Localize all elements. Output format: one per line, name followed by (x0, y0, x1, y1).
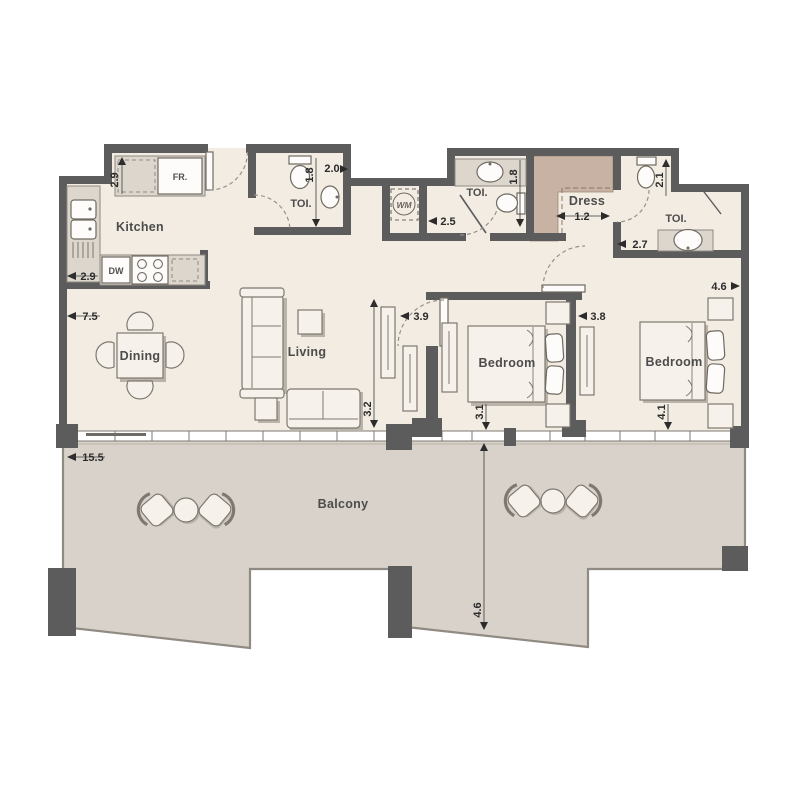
toilet2-wc-tank (517, 193, 525, 214)
pillar-right (722, 546, 748, 571)
dishwasher-label: DW (109, 266, 124, 276)
toilet1-label: TOI. (290, 198, 311, 210)
toilet3-wc-tank (637, 157, 656, 165)
toilet1-wc-tank (289, 156, 311, 164)
kitchen-label: Kitchen (116, 220, 164, 234)
dim-living-h: 3.2 (362, 401, 374, 416)
floor-plan: FR. DW Kitchen TOI. WM (0, 0, 800, 800)
living-label: Living (288, 345, 327, 359)
dim-lobby: 2.5 (440, 216, 455, 228)
dim-bedroom1-h: 3.1 (474, 404, 486, 419)
fridge-label: FR. (173, 172, 188, 182)
bedroom1-nightstand-top (546, 302, 570, 324)
balcony-table (174, 498, 198, 522)
dim-toilet1-h: 1.8 (304, 167, 316, 182)
bedroom2-label: Bedroom (646, 355, 703, 369)
dim-bedroom2-h: 4.1 (656, 404, 668, 419)
toilet3-wc-bowl (638, 166, 655, 188)
bedroom2-nightstand-top (708, 298, 733, 320)
dim-kitchen-bottom: 2.9 (80, 271, 95, 283)
dim-bedroom2-top: 4.6 (711, 281, 726, 293)
side-table (255, 398, 277, 420)
bedroom2-nightstand-bottom (708, 404, 733, 428)
dim-bedroom1-w: 3.8 (590, 311, 605, 323)
dim-dress-w: 1.2 (574, 211, 589, 223)
kitchen-sink-2 (71, 220, 96, 239)
dining-label: Dining (120, 349, 161, 363)
dim-kitchen-left: 2.9 (109, 172, 121, 187)
dim-toilet1-w: 2.0 (324, 163, 339, 175)
toilet2-label: TOI. (466, 187, 487, 199)
entry-door-leaf (206, 152, 213, 190)
dim-toilet2-h: 1.8 (508, 169, 520, 184)
bedroom1-nightstand-bottom (546, 404, 570, 427)
bedroom1-label: Bedroom (479, 356, 536, 370)
sofa-3seat (242, 295, 283, 390)
bedroom2-door-leaf (542, 285, 585, 292)
toilet3-label: TOI. (665, 213, 686, 225)
pillar-left (48, 568, 76, 636)
dim-toilet3-w: 2.7 (632, 239, 647, 251)
dim-living-w: 7.5 (82, 311, 97, 323)
kitchen-sink-1 (71, 200, 96, 219)
dress-area: Dress (569, 194, 605, 208)
dim-toilet3-h: 2.1 (654, 172, 666, 187)
pillar-middle (388, 566, 412, 638)
balcony-label: Balcony (318, 497, 369, 511)
stove (132, 256, 168, 284)
toilet2-wc-bowl (497, 194, 518, 212)
dim-balcony-w: 15.5 (82, 452, 103, 464)
balcony-table (541, 489, 565, 513)
dim-balcony-d: 4.6 (472, 602, 484, 617)
floor-plan-svg: FR. DW Kitchen TOI. WM (0, 0, 800, 800)
dress-label: Dress (569, 194, 605, 208)
washer-label: WM (396, 200, 412, 210)
coffee-table (298, 310, 322, 334)
dim-hall-w: 3.9 (413, 311, 428, 323)
